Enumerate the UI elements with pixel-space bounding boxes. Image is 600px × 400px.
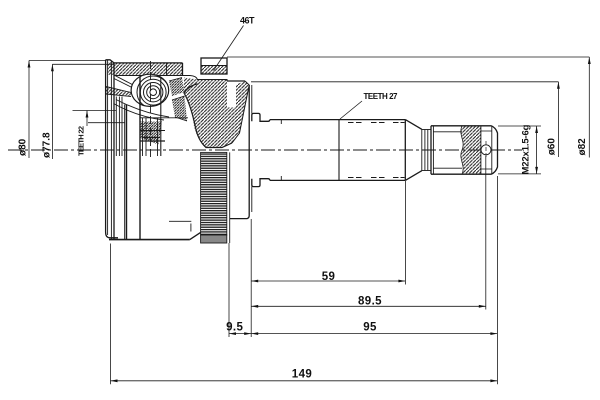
svg-text:TEETH 27: TEETH 27: [364, 92, 399, 101]
svg-text:46T: 46T: [240, 16, 255, 26]
svg-text:149: 149: [292, 368, 312, 380]
svg-text:ø77.8: ø77.8: [42, 132, 53, 158]
svg-text:ø80: ø80: [18, 138, 29, 156]
svg-text:M22x1.5-6g: M22x1.5-6g: [521, 124, 532, 174]
svg-text:59: 59: [322, 271, 336, 283]
svg-text:95: 95: [363, 321, 377, 333]
svg-text:TEETH 22: TEETH 22: [77, 126, 86, 156]
svg-text:ø60: ø60: [546, 138, 557, 156]
svg-text:89.5: 89.5: [358, 296, 382, 308]
svg-text:ø82: ø82: [577, 138, 588, 156]
svg-text:9.5: 9.5: [226, 321, 243, 333]
